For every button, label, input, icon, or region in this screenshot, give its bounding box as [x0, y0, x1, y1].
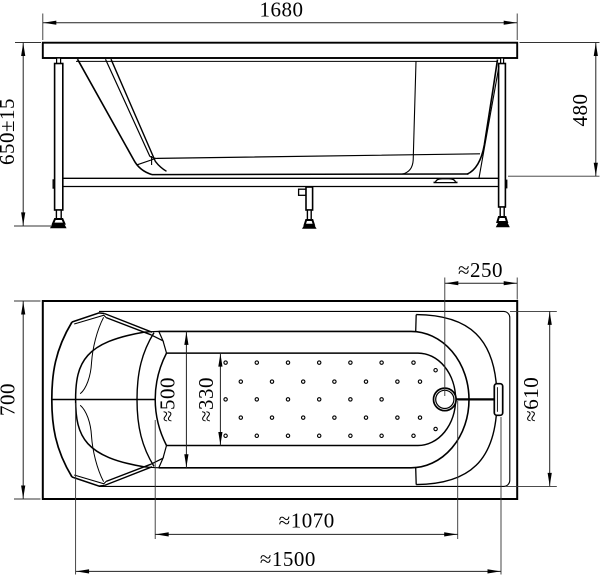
svg-text:≈250: ≈250 [458, 258, 503, 282]
svg-text:≈1500: ≈1500 [260, 547, 316, 571]
svg-text:650±15: 650±15 [0, 98, 19, 165]
svg-text:≈500: ≈500 [156, 377, 180, 422]
svg-text:1680: 1680 [260, 0, 304, 22]
svg-text:≈1070: ≈1070 [279, 509, 335, 533]
svg-text:700: 700 [0, 383, 19, 416]
svg-text:≈330: ≈330 [194, 377, 218, 422]
svg-text:≈610: ≈610 [519, 377, 543, 422]
svg-text:480: 480 [568, 94, 592, 127]
